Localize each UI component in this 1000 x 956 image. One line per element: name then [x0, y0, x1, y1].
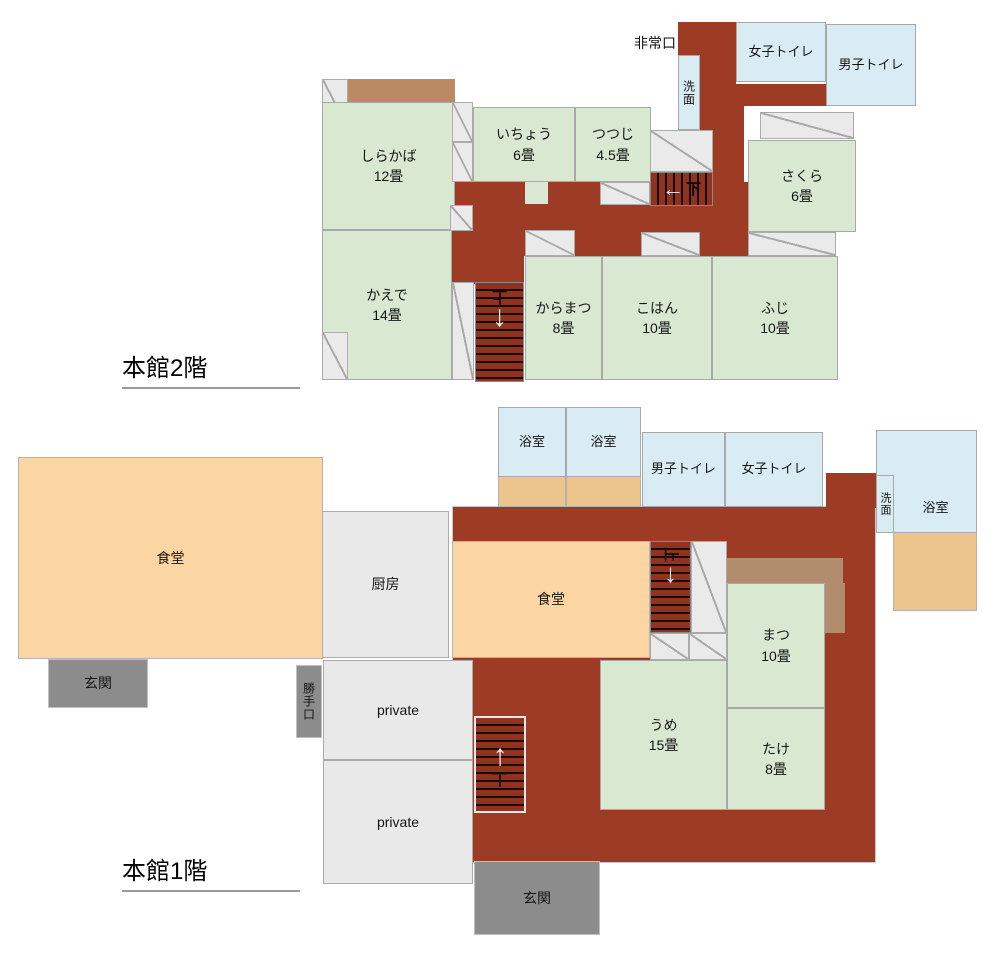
f2-closet	[452, 282, 474, 380]
room-tsutsuji: つつじ 4.5畳	[575, 107, 651, 182]
arrow-down-icon: ↓	[492, 304, 507, 330]
room-fuji: ふじ 10畳	[712, 256, 838, 380]
f2-closet	[600, 182, 650, 205]
room-name: いちょう	[496, 124, 552, 144]
room-name: 浴室	[922, 499, 948, 518]
room-name: つつじ	[592, 124, 634, 144]
f1-corridor-right-top	[826, 473, 876, 508]
room-size: 4.5畳	[596, 145, 629, 165]
f2-closet	[525, 230, 575, 256]
stair-down-label: 下	[686, 182, 701, 197]
room-size: 12畳	[374, 166, 404, 186]
stair-down-label: 上	[663, 547, 678, 562]
f1-private-1: private	[323, 660, 473, 760]
f1-entrance-side: 玄関	[474, 861, 600, 935]
staircase-f1-up: ↑ 上	[474, 716, 526, 813]
room-name: たけ	[762, 739, 790, 759]
floor1-title-text: 本館1階	[122, 858, 207, 885]
room-name: しらかば	[361, 146, 417, 166]
room-name: private	[377, 812, 419, 832]
room-matsu: まつ 10畳	[727, 583, 825, 708]
room-size: 15畳	[649, 735, 679, 755]
f1-bath-right-floor	[893, 533, 977, 611]
room-size: 8畳	[765, 759, 787, 779]
arrow-up-icon: ↑	[493, 743, 508, 769]
f1-veranda-top	[727, 558, 843, 583]
room-ume: うめ 15畳	[600, 660, 727, 810]
room-name: private	[377, 700, 419, 720]
room-take: たけ 8畳	[727, 708, 825, 810]
f2-emergency-exit-label: 非常口	[614, 33, 676, 53]
room-size: 6畳	[791, 186, 813, 206]
room-karamatsu: からまつ 8畳	[525, 256, 602, 380]
f2-corridor-top	[700, 84, 826, 106]
stair-up-label: 上	[492, 289, 507, 304]
stair-up-label: 上	[492, 771, 507, 786]
floor1-title: 本館1階	[122, 851, 300, 892]
f2-closet	[322, 332, 348, 380]
f2-closet	[748, 232, 836, 256]
f2-closet	[641, 232, 700, 256]
f2-men-toilet: 男子トイレ	[826, 24, 916, 106]
room-name: まつ	[762, 625, 790, 645]
room-name: ふじ	[761, 298, 789, 318]
f1-dining-hall: 食堂	[18, 457, 323, 659]
f2-women-toilet: 女子トイレ	[736, 22, 826, 82]
f1-closet	[689, 633, 727, 660]
f1-dining-annex: 食堂	[452, 541, 650, 658]
arrow-left-icon: ←	[662, 180, 684, 199]
room-size: 10畳	[642, 318, 672, 338]
f2-closet	[450, 205, 473, 231]
room-name: 食堂	[537, 589, 565, 609]
f1-women-toilet: 女子トイレ	[725, 432, 823, 507]
floorplan-canvas: 非常口 女子トイレ 男子トイレ 洗面 しらかば 12畳 いちょう 6畳 つつじ …	[0, 0, 1000, 956]
room-name: 玄関	[523, 888, 551, 908]
staircase-f1-down: 上 ↓	[650, 541, 691, 633]
f1-closet	[650, 633, 689, 660]
room-name: 食堂	[157, 548, 185, 568]
room-shirakaba: しらかば 12畳	[322, 102, 455, 230]
room-size: 8畳	[553, 318, 575, 338]
room-size: 10畳	[760, 318, 790, 338]
f2-closet	[650, 130, 713, 172]
f1-back-door: 勝手口	[296, 665, 322, 738]
f2-washroom: 洗面	[678, 55, 700, 130]
room-name: うめ	[650, 715, 678, 735]
f1-bath-2-floor	[566, 477, 641, 507]
f2-closet	[452, 142, 473, 182]
f2-closet	[452, 102, 473, 142]
f2-alcove	[525, 182, 548, 204]
f1-bath-1-floor	[498, 477, 566, 507]
room-size: 14畳	[372, 305, 402, 325]
f1-closet	[691, 541, 727, 633]
floor2-title: 本館2階	[122, 348, 300, 389]
room-name: からまつ	[536, 298, 592, 318]
f2-veranda	[348, 79, 455, 102]
f1-veranda-right	[825, 583, 845, 633]
room-name: さくら	[781, 166, 823, 186]
floor2-title-text: 本館2階	[122, 355, 207, 382]
room-size: 6畳	[513, 145, 535, 165]
room-name: かえで	[366, 285, 408, 305]
f1-bath-1: 浴室	[498, 407, 566, 477]
room-sakura: さくら 6畳	[748, 140, 856, 232]
room-name: 玄関	[84, 673, 112, 693]
f2-closet	[760, 112, 854, 139]
f1-washroom: 洗面	[876, 475, 894, 533]
f1-entrance-front: 玄関	[48, 659, 148, 708]
room-name: こはん	[636, 298, 678, 318]
f1-kitchen: 厨房	[322, 511, 449, 658]
f1-bath-2: 浴室	[566, 407, 641, 477]
room-name: 厨房	[372, 574, 400, 594]
staircase-f2-down: ← 下	[650, 172, 713, 206]
f1-private-2: private	[323, 760, 473, 884]
staircase-f2-up: 上 ↓	[475, 282, 524, 382]
room-size: 10畳	[761, 646, 791, 666]
f2-stairwell-notch	[452, 252, 474, 282]
arrow-down-icon: ↓	[664, 562, 677, 584]
room-kohan: こはん 10畳	[602, 256, 712, 380]
f1-men-toilet: 男子トイレ	[642, 432, 725, 507]
room-icho: いちょう 6畳	[473, 107, 575, 182]
